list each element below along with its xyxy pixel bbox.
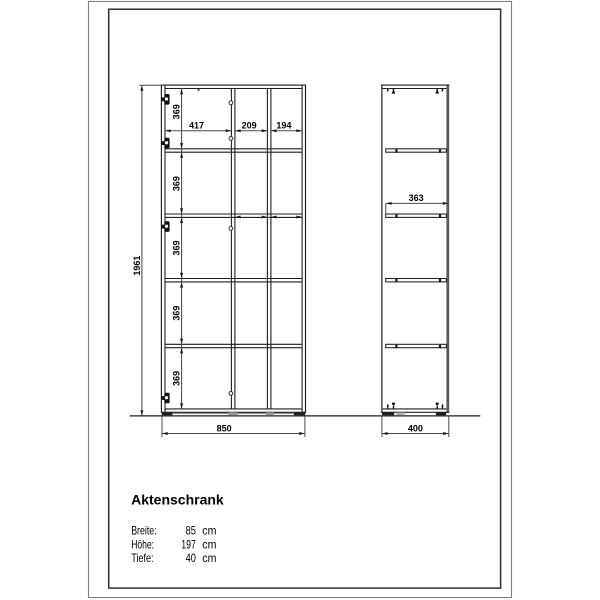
svg-text:850: 850 (217, 423, 232, 433)
svg-text:369: 369 (172, 371, 182, 386)
svg-text:369: 369 (172, 176, 182, 191)
svg-text:cm: cm (202, 524, 216, 538)
svg-text:369: 369 (172, 104, 182, 119)
svg-text:40: 40 (186, 551, 197, 565)
svg-text:cm: cm (202, 551, 216, 565)
svg-text:Höhe:: Höhe: (131, 538, 154, 552)
svg-text:209: 209 (242, 120, 257, 130)
svg-text:369: 369 (172, 240, 182, 255)
svg-text:Breite:: Breite: (131, 524, 156, 538)
svg-text:194: 194 (276, 120, 291, 130)
svg-text:1961: 1961 (132, 256, 142, 276)
svg-text:363: 363 (409, 193, 424, 203)
svg-text:197: 197 (181, 538, 196, 552)
svg-text:Tiefe:: Tiefe: (131, 551, 153, 565)
svg-text:cm: cm (202, 538, 216, 552)
svg-text:Aktenschrank: Aktenschrank (131, 491, 224, 507)
svg-text:417: 417 (189, 120, 204, 130)
svg-text:369: 369 (172, 306, 182, 321)
svg-text:85: 85 (186, 524, 197, 538)
svg-text:400: 400 (408, 423, 423, 433)
